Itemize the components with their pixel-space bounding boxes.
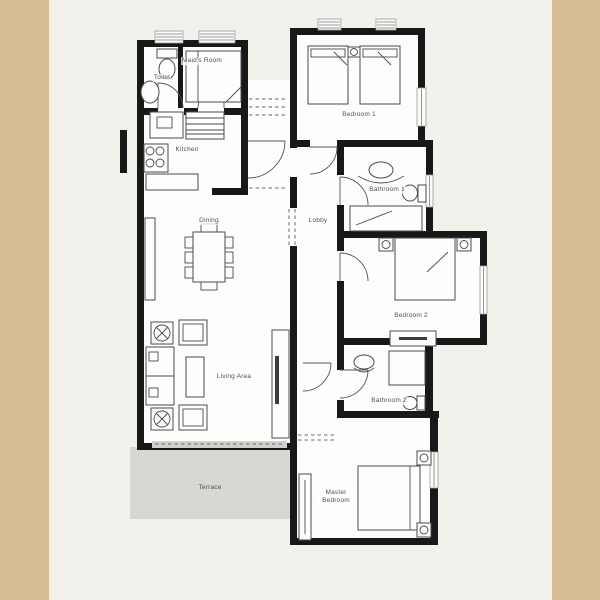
room-label-maids-room: Maid's Room [181, 57, 223, 65]
room-label-bedroom-1: Bedroom 1 [341, 111, 377, 119]
room-label-lobby: Lobby [308, 217, 329, 225]
room-label-bedroom-2: Bedroom 2 [393, 312, 429, 320]
terrace-area [130, 447, 290, 519]
floor-plan-page: Toilet Maid's Room Kitchen Dining Lobby … [0, 0, 600, 600]
room-label-toilet: Toilet [153, 74, 171, 82]
room-label-terrace: Terrace [197, 484, 222, 492]
room-label-bathroom-2: Bathroom 2 [370, 397, 408, 405]
floor-plan-drawing [0, 0, 600, 600]
room-label-master-bedroom: Master Bedroom [317, 489, 355, 505]
room-label-kitchen: Kitchen [174, 146, 199, 154]
room-label-living-area: Living Area [216, 373, 252, 381]
room-label-dining: Dining [198, 217, 220, 225]
room-label-bathroom-1: Bathroom 1 [368, 186, 406, 194]
